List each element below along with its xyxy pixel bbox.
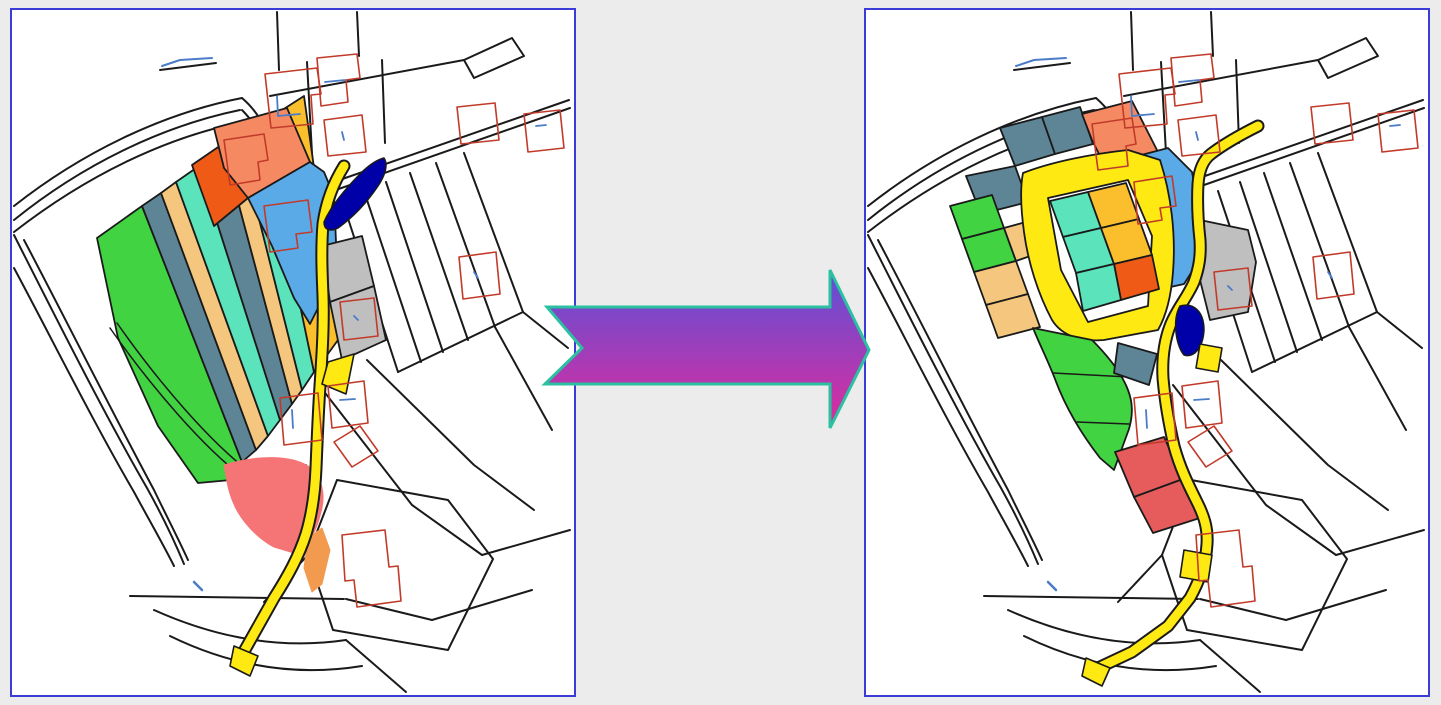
road-band-upper: [270, 60, 464, 96]
parcel-bottom-right: [308, 480, 493, 650]
road-bottom-horizontal: [984, 596, 1198, 599]
strip-ext-1: [1377, 312, 1422, 348]
road-band-junction: [464, 38, 524, 78]
strip-line-3: [386, 182, 443, 352]
land-consolidation-before-after-diagram: [0, 0, 1441, 705]
road-fan-2: [1200, 640, 1260, 692]
building-mid-1-blue-mark: [1146, 410, 1147, 428]
top-boundary-v1: [277, 12, 279, 70]
map-panel-after: [864, 8, 1430, 697]
building-mid-2-blue-mark: [1194, 399, 1209, 400]
building-top-c: [324, 115, 366, 156]
building-mid-2-blue-mark: [340, 399, 355, 400]
parcel-diag-1: [319, 385, 482, 555]
parcel-bottom-r1: [432, 590, 532, 620]
top-boundary-v4: [357, 12, 359, 56]
parcel-bottom-r2: [482, 530, 570, 555]
stream-blue-dot-bottom: [194, 582, 202, 590]
parcel-diag-2: [1221, 360, 1388, 510]
block-turquoise-3: [1076, 264, 1121, 311]
transform-arrow: [535, 262, 880, 440]
top-boundary-v4: [1211, 12, 1213, 56]
building-top-c-blue-mark: [342, 132, 344, 140]
stream-blue-dot-bottom: [1048, 582, 1056, 590]
building-top-right-2-blue-mark: [536, 125, 546, 126]
cadastral-map-after: [866, 10, 1428, 695]
building-top-right-2-blue-mark: [1390, 125, 1400, 126]
building-east: [1313, 252, 1354, 299]
map-panel-before: [10, 8, 576, 697]
top-boundary-v3: [382, 60, 385, 143]
parcel-bottom-r1: [1286, 590, 1386, 620]
block-arrow-right-icon: [545, 270, 869, 428]
road-band-upper: [1124, 60, 1318, 96]
parcel-yellow-square: [1196, 344, 1222, 372]
strip-ext-2: [1349, 327, 1406, 430]
top-boundary-v1: [1131, 12, 1133, 70]
parcel-diag-2: [367, 360, 534, 510]
cadastral-map-before: [12, 10, 574, 695]
strip-line-5: [436, 163, 495, 327]
building-mid-1-blue-mark: [292, 410, 293, 428]
road-fan-2: [346, 640, 406, 692]
strip-line-6: [1318, 153, 1377, 312]
building-top-c-blue-mark: [1196, 132, 1198, 140]
parcel-bottom-r2: [1336, 530, 1424, 555]
strip-line-5: [1290, 163, 1349, 327]
parcel-diag-1: [1173, 385, 1336, 555]
road-bulge-square: [1180, 550, 1212, 582]
transform-arrow-graphic: [535, 262, 880, 440]
building-east: [459, 252, 500, 299]
road-bottom-horizontal: [130, 596, 344, 599]
road-yellow-tip: [230, 646, 258, 676]
building-bottom-right-large: [342, 530, 401, 607]
parcel-conn-bottom: [1118, 555, 1162, 602]
road-band-junction: [1318, 38, 1378, 78]
strip-line-6: [464, 153, 523, 312]
